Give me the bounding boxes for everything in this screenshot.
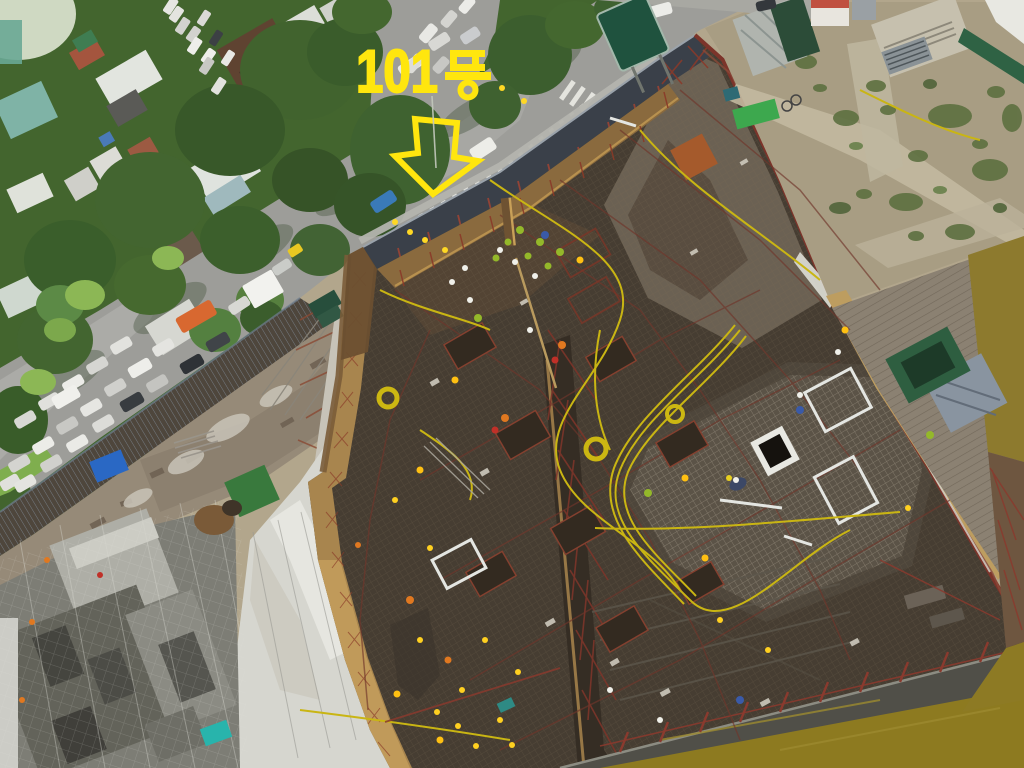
svg-text:101: 101 (356, 38, 438, 105)
